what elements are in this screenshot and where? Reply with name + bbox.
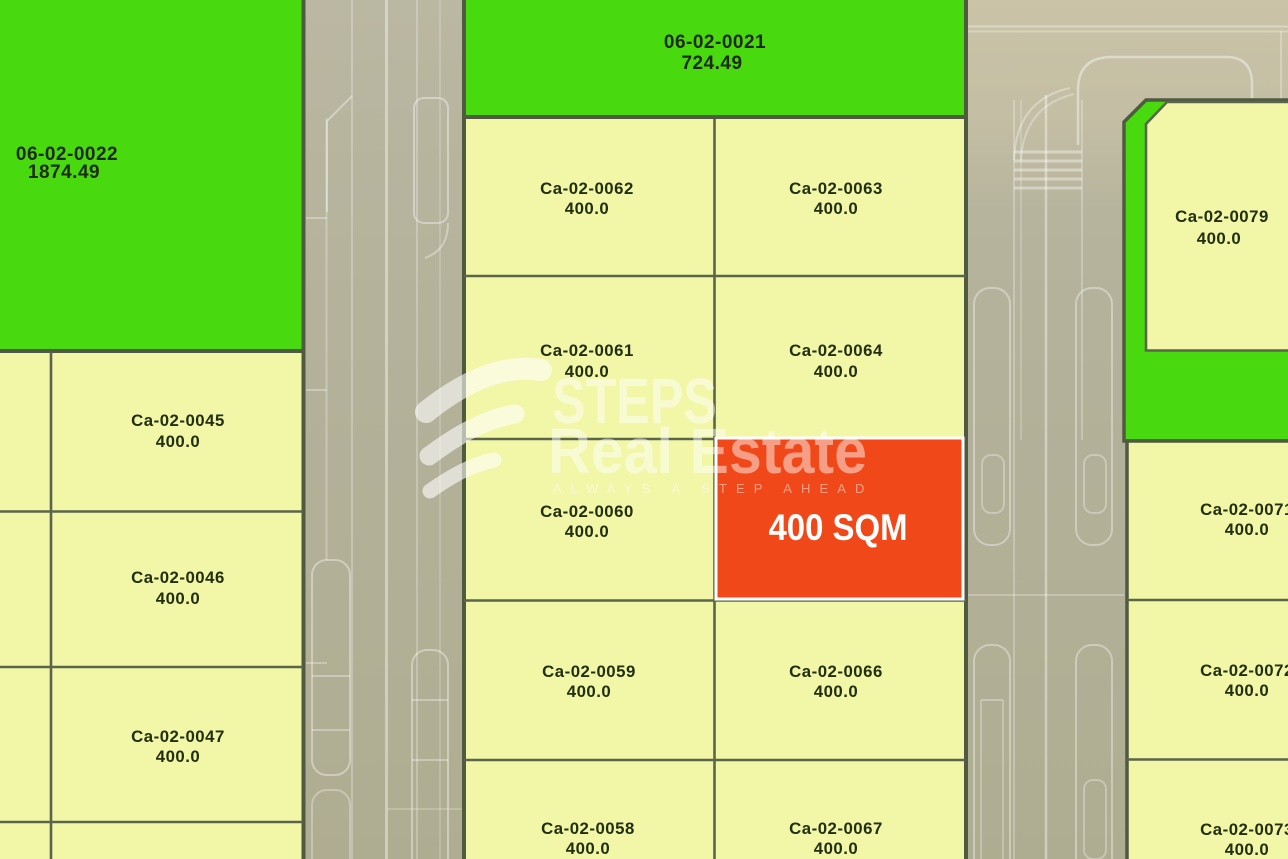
svg-text:Ca-02-0046: Ca-02-0046 bbox=[131, 568, 225, 587]
svg-text:400.0: 400.0 bbox=[1225, 840, 1270, 859]
svg-text:400.0: 400.0 bbox=[814, 682, 859, 701]
svg-text:Ca-02-0064: Ca-02-0064 bbox=[789, 341, 883, 360]
svg-text:400.0: 400.0 bbox=[814, 839, 859, 858]
svg-text:400.0: 400.0 bbox=[565, 522, 610, 541]
svg-text:Ca-02-0047: Ca-02-0047 bbox=[131, 727, 225, 746]
svg-text:400.0: 400.0 bbox=[1225, 520, 1270, 539]
svg-text:Ca-02-0067: Ca-02-0067 bbox=[789, 819, 883, 838]
svg-text:1874.49: 1874.49 bbox=[28, 162, 100, 183]
svg-text:Ca-02-0059: Ca-02-0059 bbox=[542, 662, 636, 681]
svg-text:Ca-02-0072: Ca-02-0072 bbox=[1200, 661, 1288, 680]
svg-text:400.0: 400.0 bbox=[814, 362, 859, 381]
svg-text:400.0: 400.0 bbox=[566, 839, 611, 858]
svg-text:400.0: 400.0 bbox=[1197, 229, 1242, 248]
svg-text:Ca-02-0060: Ca-02-0060 bbox=[540, 502, 634, 521]
svg-text:400.0: 400.0 bbox=[565, 199, 610, 218]
svg-text:400.0: 400.0 bbox=[814, 199, 859, 218]
svg-text:ALWAYS A STEP AHEAD: ALWAYS A STEP AHEAD bbox=[553, 481, 874, 496]
svg-text:Ca-02-0062: Ca-02-0062 bbox=[540, 179, 634, 198]
svg-text:400 SQM: 400 SQM bbox=[769, 507, 908, 548]
svg-text:Ca-02-0066: Ca-02-0066 bbox=[789, 662, 883, 681]
svg-text:400.0: 400.0 bbox=[156, 589, 201, 608]
svg-text:Ca-02-0073: Ca-02-0073 bbox=[1200, 820, 1288, 839]
svg-text:724.49: 724.49 bbox=[681, 53, 742, 74]
svg-text:400.0: 400.0 bbox=[156, 747, 201, 766]
svg-text:400.0: 400.0 bbox=[567, 682, 612, 701]
svg-text:Ca-02-0058: Ca-02-0058 bbox=[541, 819, 635, 838]
svg-text:Real Estate: Real Estate bbox=[548, 415, 867, 487]
svg-text:06-02-0021: 06-02-0021 bbox=[664, 32, 766, 53]
svg-text:Ca-02-0063: Ca-02-0063 bbox=[789, 179, 883, 198]
svg-text:400.0: 400.0 bbox=[1225, 681, 1270, 700]
svg-text:400.0: 400.0 bbox=[156, 432, 201, 451]
svg-text:Ca-02-0079: Ca-02-0079 bbox=[1175, 207, 1269, 226]
svg-text:Ca-02-0071: Ca-02-0071 bbox=[1200, 500, 1288, 519]
svg-text:Ca-02-0061: Ca-02-0061 bbox=[540, 341, 634, 360]
svg-text:Ca-02-0045: Ca-02-0045 bbox=[131, 411, 225, 430]
